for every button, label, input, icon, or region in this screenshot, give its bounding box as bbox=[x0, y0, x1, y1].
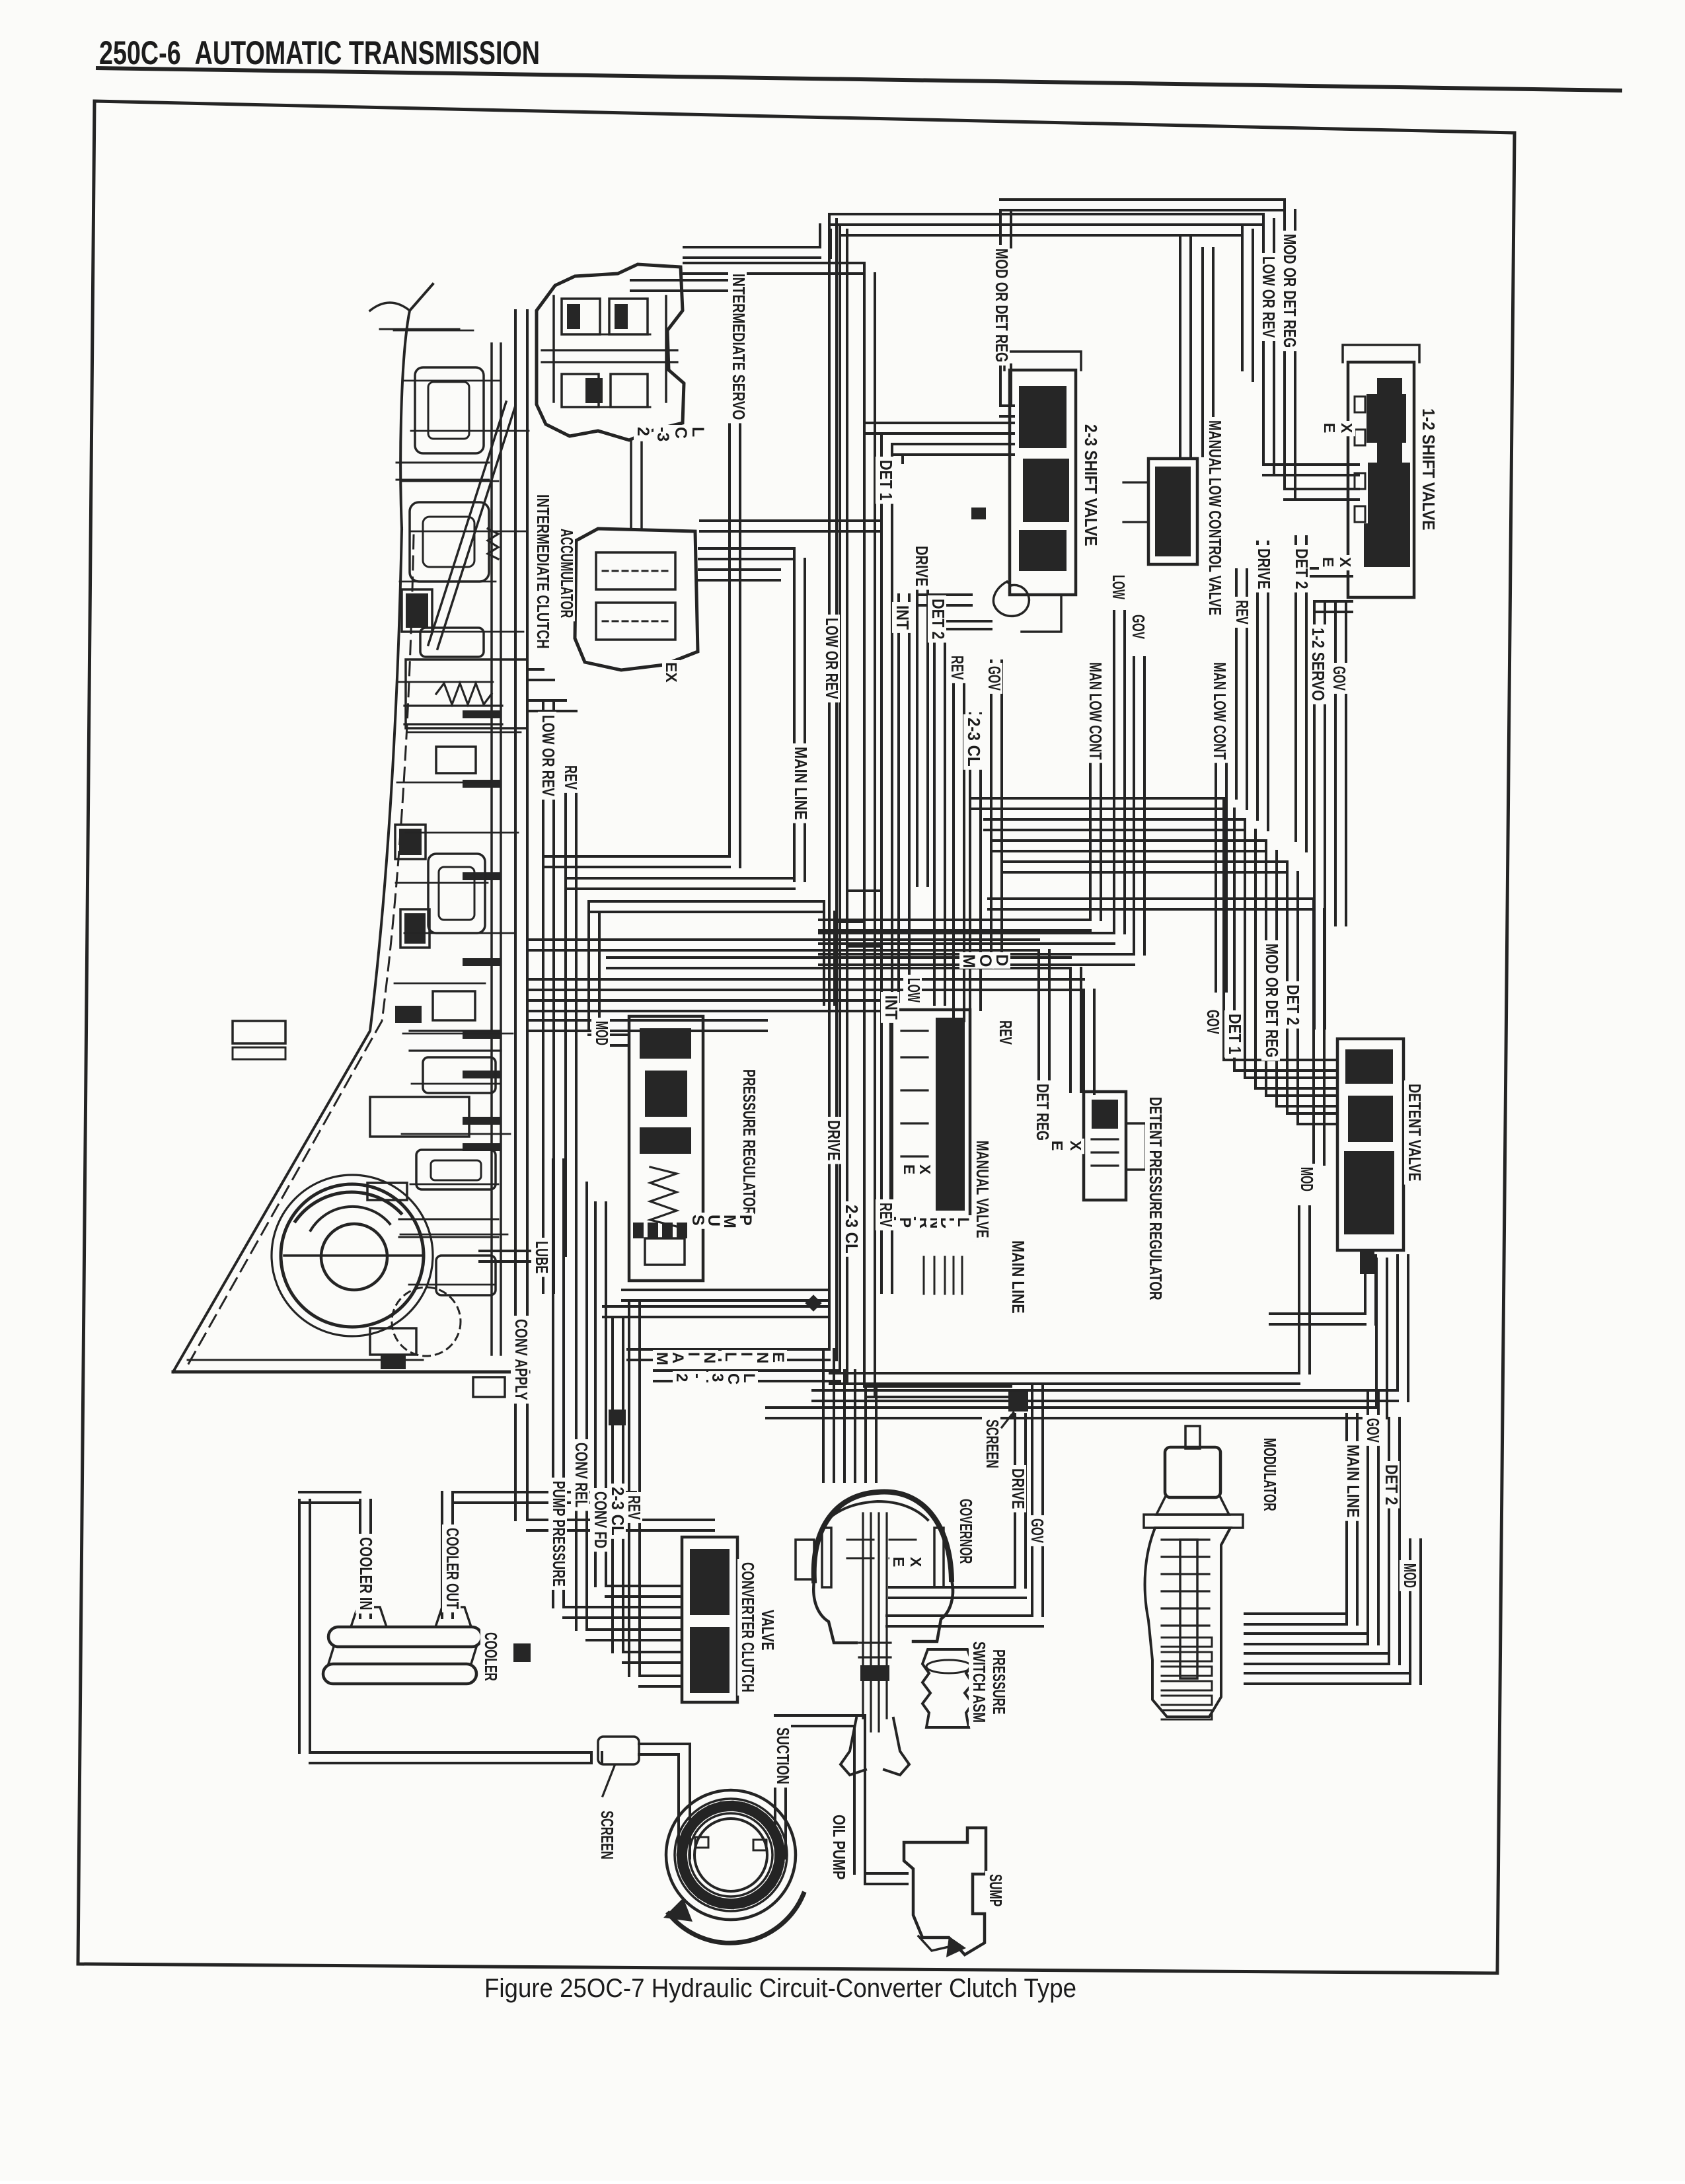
svg-text:MOD: MOD bbox=[1297, 1167, 1317, 1191]
svg-text:EX: EX bbox=[663, 662, 680, 683]
svg-text:X: X bbox=[907, 1557, 924, 1567]
svg-text:LOW: LOW bbox=[1109, 575, 1129, 599]
svg-text:MOD OR DET REG: MOD OR DET REG bbox=[1262, 944, 1282, 1057]
svg-text:Figure 25OC-7 Hydraulic Circui: Figure 25OC-7 Hydraulic Circuit-Converte… bbox=[484, 1974, 1076, 2003]
svg-text:MAIN LINE: MAIN LINE bbox=[791, 747, 811, 820]
svg-text:INTERMEDIATE CLUTCH: INTERMEDIATE CLUTCH bbox=[533, 494, 553, 649]
svg-text:P: P bbox=[736, 1215, 755, 1226]
svg-text:DETENT VALVE: DETENT VALVE bbox=[1405, 1084, 1425, 1182]
svg-text:MOD OR DET REG: MOD OR DET REG bbox=[992, 248, 1012, 362]
svg-text:L: L bbox=[740, 1373, 758, 1383]
svg-text:O: O bbox=[976, 954, 994, 967]
svg-text:N: N bbox=[700, 1352, 718, 1363]
svg-text:DET 2: DET 2 bbox=[1283, 985, 1303, 1026]
svg-text:MANUAL VALVE: MANUAL VALVE bbox=[973, 1141, 992, 1238]
svg-text:ACCUMULATOR: ACCUMULATOR bbox=[557, 529, 577, 618]
svg-text:GOV: GOV bbox=[1363, 1418, 1383, 1443]
svg-text:2-3 CL: 2-3 CL bbox=[842, 1205, 862, 1254]
svg-text:SCREEN: SCREEN bbox=[983, 1419, 1002, 1468]
svg-text:DETENT PRESSURE REGULATOR: DETENT PRESSURE REGULATOR bbox=[1146, 1097, 1166, 1300]
svg-text:L: L bbox=[689, 427, 707, 437]
svg-text:A: A bbox=[669, 1352, 687, 1363]
svg-text:DET REG: DET REG bbox=[1033, 1084, 1053, 1141]
svg-text:COOLER IN: COOLER IN bbox=[356, 1537, 376, 1610]
svg-text:E: E bbox=[1049, 1141, 1066, 1150]
svg-text:GOV: GOV bbox=[1203, 1010, 1223, 1034]
svg-text:3: 3 bbox=[708, 1373, 726, 1382]
svg-text:MOD: MOD bbox=[1400, 1563, 1420, 1588]
svg-text:MAIN LINE: MAIN LINE bbox=[1008, 1240, 1028, 1314]
svg-text:E: E bbox=[1321, 423, 1338, 433]
svg-text:C: C bbox=[671, 427, 690, 439]
svg-text:P: P bbox=[896, 1217, 914, 1228]
svg-text:LOW: LOW bbox=[904, 978, 924, 1002]
svg-text:I: I bbox=[685, 1352, 702, 1357]
svg-text:SUCTION: SUCTION bbox=[773, 1727, 793, 1784]
svg-text:COOLER OUT: COOLER OUT bbox=[443, 1528, 463, 1609]
svg-text:DRIVE: DRIVE bbox=[824, 1120, 844, 1161]
svg-text:OIL PUMP: OIL PUMP bbox=[829, 1815, 849, 1879]
svg-text:250C-6 AUTOMATIC TRANSMISSION: 250C-6 AUTOMATIC TRANSMISSION bbox=[99, 34, 540, 71]
svg-text:S: S bbox=[689, 1215, 707, 1226]
svg-text:LOW OR REV: LOW OR REV bbox=[822, 618, 842, 699]
svg-text:MAIN LINE: MAIN LINE bbox=[1343, 1445, 1363, 1518]
svg-text:M: M bbox=[959, 954, 978, 968]
svg-text:2: 2 bbox=[634, 427, 652, 436]
svg-text:L: L bbox=[954, 1217, 972, 1227]
svg-text:E: E bbox=[1320, 557, 1337, 567]
svg-text:REV: REV bbox=[561, 765, 581, 790]
svg-text:MANUAL LOW CONTROL VALVE: MANUAL LOW CONTROL VALVE bbox=[1205, 420, 1225, 615]
svg-text:MOD: MOD bbox=[592, 1021, 612, 1045]
svg-text:DRIVE: DRIVE bbox=[1008, 1468, 1028, 1509]
svg-text:N: N bbox=[753, 1352, 771, 1363]
svg-text:SCREEN: SCREEN bbox=[597, 1811, 617, 1860]
svg-text:E: E bbox=[890, 1557, 907, 1567]
svg-text:2: 2 bbox=[673, 1373, 691, 1382]
svg-text:1-2 SHIFT VALVE: 1-2 SHIFT VALVE bbox=[1419, 408, 1439, 531]
svg-text:X: X bbox=[1337, 557, 1354, 568]
svg-text:M: M bbox=[720, 1215, 739, 1228]
svg-text:DET 1: DET 1 bbox=[1225, 1014, 1245, 1055]
svg-text:L: L bbox=[722, 1352, 739, 1362]
svg-text:U: U bbox=[704, 1215, 723, 1226]
svg-text:MAN LOW CONT: MAN LOW CONT bbox=[1086, 662, 1105, 760]
svg-text:E: E bbox=[901, 1164, 918, 1174]
svg-text:REV: REV bbox=[996, 1020, 1016, 1045]
svg-text:1-2 SERVO: 1-2 SERVO bbox=[1308, 628, 1328, 701]
svg-text:VALVE: VALVE bbox=[758, 1610, 778, 1651]
svg-text:SUMP: SUMP bbox=[986, 1874, 1006, 1906]
svg-text:SWITCH ASM: SWITCH ASM bbox=[969, 1641, 989, 1723]
svg-text:REV: REV bbox=[624, 1495, 644, 1520]
svg-text:E: E bbox=[769, 1352, 787, 1363]
svg-text:LOW OR REV: LOW OR REV bbox=[1259, 256, 1279, 338]
svg-text:GOV: GOV bbox=[985, 666, 1004, 691]
svg-text:CONV REL: CONV REL bbox=[572, 1443, 591, 1507]
svg-text:X: X bbox=[917, 1164, 934, 1175]
svg-text:REV: REV bbox=[876, 1203, 896, 1227]
svg-text:C: C bbox=[724, 1373, 742, 1384]
svg-text:LUBE: LUBE bbox=[532, 1241, 552, 1273]
svg-text:-: - bbox=[689, 1373, 706, 1378]
svg-text:CONVERTER CLUTCH: CONVERTER CLUTCH bbox=[738, 1562, 758, 1692]
svg-text:GOV: GOV bbox=[1028, 1519, 1047, 1543]
svg-text:MOD OR DET REG: MOD OR DET REG bbox=[1280, 234, 1300, 348]
svg-text:REV: REV bbox=[948, 656, 967, 680]
svg-text:M: M bbox=[653, 1352, 671, 1365]
svg-text:INTERMEDIATE SERVO: INTERMEDIATE SERVO bbox=[729, 274, 749, 420]
svg-text:DET 2: DET 2 bbox=[1382, 1464, 1402, 1505]
svg-text:PUMP PRESSURE: PUMP PRESSURE bbox=[549, 1481, 569, 1587]
svg-text:DRIVE: DRIVE bbox=[912, 546, 932, 587]
svg-text:X: X bbox=[1067, 1141, 1084, 1151]
svg-text:DET 2: DET 2 bbox=[1292, 548, 1312, 589]
svg-text:PRESSURE REGULATOR: PRESSURE REGULATOR bbox=[739, 1069, 759, 1216]
svg-text:COOLER: COOLER bbox=[481, 1632, 501, 1681]
svg-text:MAN LOW CONT: MAN LOW CONT bbox=[1210, 662, 1230, 760]
svg-text:X: X bbox=[1338, 423, 1355, 433]
svg-text:I: I bbox=[737, 1352, 755, 1357]
svg-text:GOVERNOR: GOVERNOR bbox=[956, 1499, 976, 1564]
svg-text:D: D bbox=[992, 954, 1011, 966]
svg-text:2-3 CL: 2-3 CL bbox=[964, 718, 984, 767]
svg-text:CONV APPLY: CONV APPLY bbox=[511, 1319, 531, 1400]
svg-text:GOV: GOV bbox=[1329, 666, 1349, 691]
svg-text:-3: -3 bbox=[654, 427, 672, 441]
svg-text:LOW OR REV: LOW OR REV bbox=[539, 715, 558, 796]
svg-text:MODULATOR: MODULATOR bbox=[1260, 1438, 1280, 1511]
svg-text:DET 2: DET 2 bbox=[928, 599, 948, 640]
svg-text:INT: INT bbox=[893, 605, 913, 630]
svg-text:REV: REV bbox=[1232, 600, 1252, 624]
svg-text:2-3 SHIFT VALVE: 2-3 SHIFT VALVE bbox=[1081, 424, 1101, 546]
svg-text:GOV: GOV bbox=[1129, 615, 1148, 639]
svg-text:PRESSURE: PRESSURE bbox=[989, 1649, 1009, 1714]
svg-text:DET 1: DET 1 bbox=[876, 460, 896, 501]
svg-text:DRIVE: DRIVE bbox=[1254, 548, 1274, 589]
svg-text:INT: INT bbox=[881, 995, 901, 1020]
